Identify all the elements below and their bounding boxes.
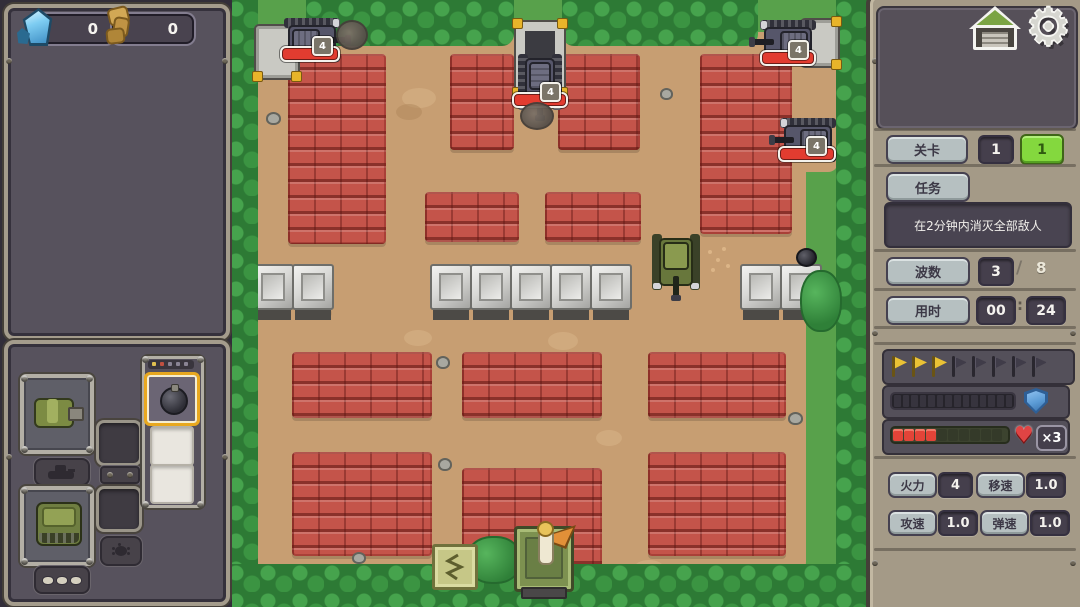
home-garage-door (982, 32, 1008, 47)
enemy-info-panel (4, 4, 230, 340)
brick-wall (288, 54, 386, 244)
screw (872, 560, 878, 566)
spawner-corner (557, 18, 568, 29)
time-colon: : (1017, 296, 1023, 314)
flag-pending-icon (969, 355, 989, 379)
time-label: 用时 (886, 296, 970, 325)
shield-segment (997, 395, 1004, 407)
ammo-strip-label (148, 360, 194, 369)
wave-separator: / (1016, 258, 1022, 278)
divider (874, 342, 1076, 345)
bullet-icon (42, 576, 54, 585)
wave-label: 波数 (886, 257, 970, 286)
bolt (197, 356, 204, 363)
steel-block (252, 264, 294, 310)
wave-flags (882, 349, 1075, 385)
steel-block (590, 264, 632, 310)
brick-wall (648, 352, 786, 418)
settings-button[interactable]: ⚙ (1026, 2, 1071, 52)
screw (1070, 330, 1076, 336)
game-screen: 4 4 4 4 0 0 (0, 0, 1080, 607)
crystal-icon (20, 8, 54, 46)
spawner-corner (291, 71, 302, 82)
scrap-icon (100, 6, 136, 44)
shield-segment (988, 395, 995, 407)
bolt (21, 446, 28, 453)
smoke-puff (520, 102, 554, 130)
bolt (142, 501, 149, 508)
enemy-level-badge: 4 (788, 40, 809, 60)
ammo-slot-selected[interactable] (144, 372, 200, 426)
screw (6, 454, 12, 460)
shield-segment (971, 395, 978, 407)
pebble (788, 412, 803, 425)
health-segment (970, 429, 980, 441)
divider (874, 548, 1076, 551)
stat-movespeed-value: 1.0 (1026, 472, 1066, 498)
brick-wall (292, 352, 432, 418)
ammo-slot-empty[interactable] (150, 464, 194, 504)
track-mark (726, 264, 730, 268)
health-segment (926, 429, 936, 441)
turret-sprite (34, 398, 74, 428)
crystal-count: 0 (88, 20, 98, 38)
track-mark (722, 247, 726, 251)
spawner-corner (252, 71, 263, 82)
pebble (438, 458, 452, 471)
time-seconds: 24 (1026, 296, 1066, 325)
steel-block (510, 264, 552, 310)
shield-bar (890, 392, 1016, 410)
health-bar (890, 426, 1010, 444)
shield-segment (894, 395, 901, 407)
wave-total: 8 (1036, 259, 1046, 277)
brick-wall (700, 54, 792, 234)
screw (127, 472, 133, 478)
shield-segment (911, 395, 918, 407)
shield-segment (928, 395, 935, 407)
shield-icon (1024, 388, 1048, 414)
stat-firepower-label: 火力 (888, 472, 937, 498)
heart-icon: ♥ (1014, 425, 1034, 447)
pebble (660, 88, 673, 100)
tree-border (562, 0, 758, 46)
bug-icon (115, 546, 127, 556)
screw (1070, 560, 1076, 566)
stat-firepower-value: 4 (938, 472, 973, 498)
bolt (86, 487, 93, 494)
stat-bulletspeed-label: 弹速 (980, 510, 1029, 536)
spawner-corner (512, 18, 523, 29)
gear-icon: ⚙ (1026, 0, 1071, 56)
enemy-level-badge: 4 (312, 36, 333, 56)
smoke-puff (336, 20, 368, 50)
screw (872, 330, 878, 336)
mission-label: 任务 (886, 172, 970, 202)
wave-current: 3 (978, 257, 1014, 286)
bolt (86, 558, 93, 565)
health-segment (904, 429, 914, 441)
bolt (86, 375, 93, 382)
mission-text: 在2分钟内消灭全部敌人 (884, 202, 1072, 248)
shield-segment (980, 395, 987, 407)
lives-multiplier: ×3 (1036, 425, 1067, 451)
scrap-count: 0 (168, 20, 178, 38)
turret-type-label (34, 458, 90, 486)
flag-pending-icon (989, 355, 1009, 379)
slot-connector (100, 466, 140, 484)
tank-icon (48, 465, 76, 479)
shield-segment (920, 395, 927, 407)
shield-strip (882, 385, 1070, 419)
track-mark (708, 250, 712, 254)
shield-segment (937, 395, 944, 407)
base-foot (521, 587, 567, 599)
shield-segment (945, 395, 952, 407)
flag-pending-icon (1009, 355, 1029, 379)
bolt (21, 375, 28, 382)
brick-wall (450, 54, 514, 150)
health-strip: ♥ ×3 (882, 419, 1070, 455)
level-stage-value: 1 (978, 135, 1014, 164)
player-base (514, 526, 574, 592)
flag-pending-icon (949, 355, 969, 379)
level-label: 关卡 (886, 135, 968, 164)
stat-bulletspeed-value: 1.0 (1030, 510, 1070, 536)
dirt-spot (548, 332, 578, 350)
dirt-spot (596, 430, 622, 446)
module-slot-empty[interactable] (96, 420, 142, 466)
flag-pending-icon (1029, 355, 1049, 379)
enemy-level-badge: 4 (806, 136, 827, 156)
tree-border (228, 0, 256, 48)
divider (874, 288, 1076, 291)
chassis-slot[interactable] (20, 486, 94, 566)
ammo-count-label (34, 566, 90, 594)
bolt (21, 558, 28, 565)
bolt (86, 446, 93, 453)
divider (874, 326, 1076, 329)
turret-slot[interactable] (20, 374, 94, 454)
health-segment (937, 429, 947, 441)
brick-wall (558, 54, 640, 150)
screw (107, 472, 113, 478)
health-segment (948, 429, 958, 441)
mine (796, 248, 817, 267)
spawner-corner (831, 59, 842, 70)
brick-wall (292, 452, 432, 556)
bush (800, 270, 842, 332)
divider (874, 128, 1076, 131)
level-substage-value: 1 (1020, 134, 1064, 165)
brick-wall (462, 352, 602, 418)
mine-button[interactable] (100, 536, 142, 566)
shield-segment (963, 395, 970, 407)
pebble (266, 112, 281, 125)
brick-wall (425, 192, 519, 242)
screw (222, 454, 228, 460)
track-mark (711, 268, 715, 272)
module-slot-empty[interactable] (96, 486, 142, 532)
screw (222, 58, 228, 64)
dirt-spot (404, 330, 432, 346)
bolt (21, 487, 28, 494)
dirt-spot (396, 104, 422, 120)
bullet-icon (70, 576, 82, 585)
track-mark (716, 258, 720, 262)
bomb-icon (160, 387, 188, 415)
steel-block (740, 264, 782, 310)
health-segment (915, 429, 925, 441)
shield-segment (954, 395, 961, 407)
time-minutes: 00 (976, 296, 1016, 325)
spawner-corner (831, 16, 842, 27)
shield-segment (1006, 395, 1013, 407)
steel-block (430, 264, 472, 310)
bullet-icon (56, 576, 68, 585)
steel-block (470, 264, 512, 310)
stat-attackspeed-value: 1.0 (938, 510, 978, 536)
health-segment (981, 429, 991, 441)
flag-completed-icon (909, 355, 929, 379)
screw (6, 58, 12, 64)
item-crate (432, 544, 478, 590)
steel-block (550, 264, 592, 310)
flag-completed-icon (929, 355, 949, 379)
stat-movespeed-label: 移速 (976, 472, 1025, 498)
divider (874, 456, 1076, 459)
steel-block (292, 264, 334, 310)
eagle-head (537, 521, 554, 537)
home-button[interactable] (972, 8, 1018, 50)
divider (874, 249, 1076, 252)
health-segment (992, 429, 1002, 441)
ammo-slot-empty[interactable] (150, 426, 194, 466)
flag-completed-icon (889, 355, 909, 379)
divider (874, 164, 1076, 167)
brick-wall (545, 192, 641, 242)
bolt (197, 501, 204, 508)
health-segment (893, 429, 903, 441)
chassis-sprite (36, 502, 82, 546)
health-segment (959, 429, 969, 441)
pebble (436, 356, 450, 369)
enemy-level-badge: 4 (540, 82, 561, 102)
tree-border (228, 0, 258, 607)
pebble (352, 552, 366, 564)
stat-attackspeed-label: 攻速 (888, 510, 937, 536)
shield-segment (903, 395, 910, 407)
zigzag-icon (444, 553, 466, 581)
player-tank (652, 234, 700, 290)
brick-wall (648, 452, 786, 556)
